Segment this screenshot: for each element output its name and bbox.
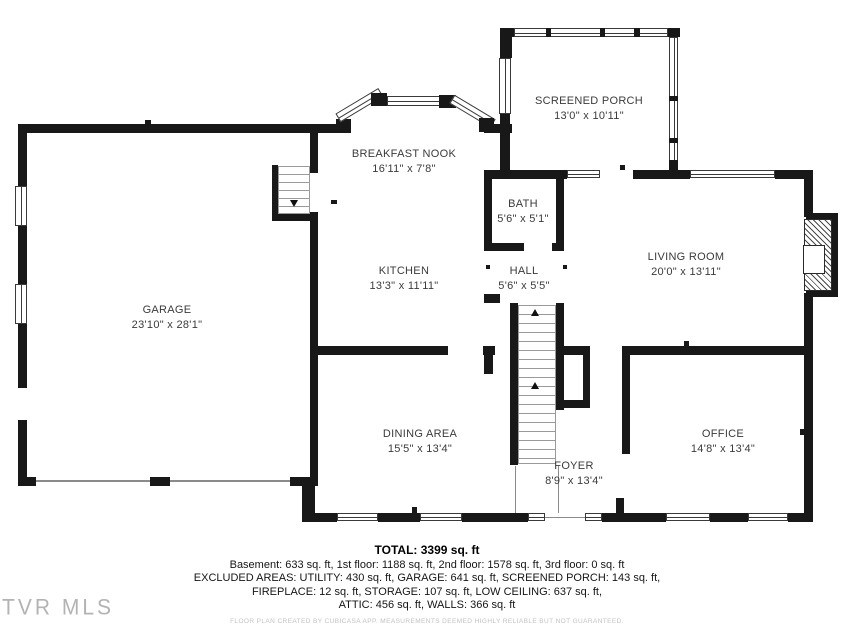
room-name: DINING AREA [383, 427, 457, 442]
wall-segment [602, 513, 666, 522]
room-dims: 23'10" x 28'1" [132, 318, 203, 333]
disclaimer-text: FLOOR PLAN CREATED BY CUBICASA APP. MEAS… [230, 618, 624, 625]
room-label-living-room: LIVING ROOM 20'0" x 13'11" [648, 250, 725, 280]
room-label-screened-porch: SCREENED PORCH 13'0" x 10'11" [535, 94, 643, 124]
sidelight-window [585, 513, 602, 521]
wall-segment [510, 303, 518, 465]
door-tick [412, 507, 417, 513]
room-dims: 20'0" x 13'11" [648, 265, 725, 280]
fireplace-firebox [803, 245, 825, 274]
room-name: HALL [498, 264, 549, 279]
room-dims: 5'6" x 5'5" [498, 279, 549, 294]
room-label-foyer: FOYER 8'9" x 13'4" [545, 459, 603, 489]
wall-segment [622, 346, 630, 454]
window [420, 513, 462, 521]
window [499, 58, 511, 114]
summary-total: TOTAL: 3399 sq. ft [194, 544, 660, 558]
window [690, 170, 775, 178]
stairs-up-arrow-icon [531, 382, 539, 389]
sidelight-window [528, 513, 545, 521]
room-label-bath: BATH 5'6" x 5'1" [497, 197, 548, 227]
wall-segment [622, 346, 812, 355]
room-dims: 13'0" x 10'11" [535, 109, 643, 124]
door-tick [486, 265, 490, 269]
wall-segment [311, 513, 337, 522]
wall-segment [484, 179, 492, 245]
wall-segment [272, 214, 318, 221]
door-tick [145, 120, 151, 124]
wall-segment [788, 513, 813, 522]
front-door [545, 517, 585, 518]
screen-wall [514, 28, 668, 37]
wall-segment [500, 114, 510, 174]
window [15, 284, 27, 324]
stairs-up-arrow-icon [531, 309, 539, 316]
room-name: FOYER [545, 459, 603, 474]
screen-post [669, 138, 678, 143]
door-tick [800, 429, 805, 435]
wall-segment [556, 303, 564, 410]
wall-segment [804, 179, 813, 217]
wall-segment [462, 513, 528, 522]
wall-segment [310, 212, 318, 477]
wall-segment [670, 170, 690, 179]
opening-line [515, 466, 516, 513]
wall-segment [371, 93, 387, 106]
window [15, 186, 27, 226]
wall-segment [484, 243, 524, 251]
room-label-kitchen: KITCHEN 13'3" x 11'11" [369, 264, 438, 294]
room-label-dining-area: DINING AREA 15'5" x 13'4" [383, 427, 457, 457]
wall-segment [18, 124, 345, 133]
wall-segment [583, 355, 590, 402]
room-label-office: OFFICE 14'8" x 13'4" [691, 427, 755, 457]
summary-line: FIREPLACE: 12 sq. ft, STORAGE: 107 sq. f… [194, 586, 660, 600]
room-dims: 8'9" x 13'4" [545, 474, 603, 489]
room-dims: 14'8" x 13'4" [691, 442, 755, 457]
room-name: BATH [497, 197, 548, 212]
wall-segment [150, 477, 170, 486]
door-tick [563, 265, 567, 269]
wall-segment [775, 170, 813, 179]
room-label-hall: HALL 5'6" x 5'5" [498, 264, 549, 294]
room-dims: 16'11" x 7'8" [352, 162, 456, 177]
room-name: GARAGE [132, 303, 203, 318]
wall-segment [616, 498, 624, 514]
door-tick [684, 341, 689, 346]
window [567, 170, 600, 178]
window [337, 513, 378, 521]
wall-segment [484, 170, 567, 179]
summary-line: EXCLUDED AREAS: UTILITY: 430 sq. ft, GAR… [194, 572, 660, 586]
wall-segment [633, 170, 670, 179]
garage-door [170, 480, 290, 482]
wall-segment [556, 346, 590, 355]
room-dims: 15'5" x 13'4" [383, 442, 457, 457]
room-label-garage: GARAGE 23'10" x 28'1" [132, 303, 203, 333]
wall-segment [310, 133, 318, 173]
wall-segment [556, 400, 590, 408]
screen-post [546, 28, 551, 37]
door-tick [620, 165, 625, 170]
screen-post [634, 28, 640, 37]
screen-post [600, 28, 605, 37]
wall-segment [336, 119, 351, 133]
wall-segment [484, 355, 493, 374]
room-dims: 13'3" x 11'11" [369, 279, 438, 294]
summary-line: ATTIC: 456 sq. ft, WALLS: 366 sq. ft [194, 599, 660, 613]
room-name: LIVING ROOM [648, 250, 725, 265]
garage-door [36, 480, 150, 482]
watermark: TVR MLS [2, 595, 114, 620]
wall-segment [18, 133, 27, 186]
room-label-breakfast-nook: BREAKFAST NOOK 16'11" x 7'8" [352, 147, 456, 177]
wall-segment [18, 226, 27, 284]
room-dims: 5'6" x 5'1" [497, 212, 548, 227]
wall-segment [500, 28, 514, 37]
wall-segment [18, 324, 27, 388]
room-name: BREAKFAST NOOK [352, 147, 456, 162]
room-name: SCREENED PORCH [535, 94, 643, 109]
wall-segment [804, 355, 813, 522]
wall-segment [378, 513, 420, 522]
room-name: KITCHEN [369, 264, 438, 279]
wall-segment [556, 170, 564, 251]
area-summary: TOTAL: 3399 sq. ft Basement: 633 sq. ft,… [194, 544, 660, 613]
window [748, 513, 788, 521]
floor-plan: SCREENED PORCH 13'0" x 10'11" BREAKFAST … [0, 0, 853, 640]
wall-segment [318, 346, 448, 355]
wall-segment [710, 513, 748, 522]
door-tick [331, 200, 337, 204]
stairs-down-arrow-icon [290, 200, 298, 207]
window [666, 513, 710, 521]
bay-window [387, 96, 441, 106]
wall-segment [804, 293, 813, 355]
wall-segment [831, 213, 838, 297]
wall-segment [484, 294, 500, 303]
wall-segment [18, 477, 36, 486]
screen-post [669, 96, 678, 101]
summary-line: Basement: 633 sq. ft, 1st floor: 1188 sq… [194, 559, 660, 573]
wall-segment [483, 346, 495, 355]
wall-segment [668, 28, 680, 37]
room-name: OFFICE [691, 427, 755, 442]
